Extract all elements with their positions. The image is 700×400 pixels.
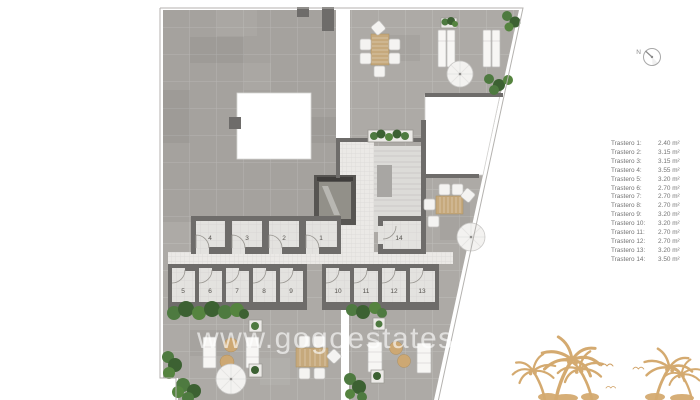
legend: Trastero 1:2.40 m² Trastero 2:3.15 m² Tr… — [611, 140, 699, 265]
room-label-1: 1 — [319, 235, 323, 242]
legend-value: 3.20 m² — [658, 247, 699, 256]
room-label-2: 2 — [282, 235, 286, 242]
legend-row: Trastero 4:3.55 m² — [611, 167, 699, 176]
room-label-9: 9 — [289, 288, 293, 295]
parasol-top — [447, 61, 473, 87]
legend-value: 2.70 m² — [658, 193, 699, 202]
legend-label: Trastero 10: — [611, 220, 658, 229]
legend-value: 3.15 m² — [658, 158, 699, 167]
legend-row: Trastero 11:2.70 m² — [611, 229, 699, 238]
legend-value: 3.20 m² — [658, 176, 699, 185]
rooftop-planter — [368, 130, 413, 143]
legend-row: Trastero 1:2.40 m² — [611, 140, 699, 149]
legend-value: 2.70 m² — [658, 238, 699, 247]
legend-value: 3.20 m² — [658, 220, 699, 229]
room-label-13: 13 — [418, 288, 426, 295]
legend-value: 3.15 m² — [658, 149, 699, 158]
legend-label: Trastero 3: — [611, 158, 658, 167]
legend-row: Trastero 6:2.70 m² — [611, 185, 699, 194]
legend-value: 2.70 m² — [658, 229, 699, 238]
legend-value: 3.20 m² — [658, 211, 699, 220]
legend-row: Trastero 7:2.70 m² — [611, 193, 699, 202]
legend-label: Trastero 11: — [611, 229, 658, 238]
legend-row: Trastero 10:3.20 m² — [611, 220, 699, 229]
legend-row: Trastero 5:3.20 m² — [611, 176, 699, 185]
legend-row: Trastero 3:3.15 m² — [611, 158, 699, 167]
legend-label: Trastero 2: — [611, 149, 658, 158]
legend-value: 2.70 m² — [658, 202, 699, 211]
north-label: N — [636, 49, 641, 56]
legend-value: 3.55 m² — [658, 167, 699, 176]
legend-row: Trastero 12:2.70 m² — [611, 238, 699, 247]
room-label-5: 5 — [181, 288, 185, 295]
room-label-10: 10 — [334, 288, 342, 295]
parasol-bottom-left — [216, 364, 246, 394]
room-label-12: 12 — [390, 288, 398, 295]
legend-label: Trastero 7: — [611, 193, 658, 202]
room-label-11: 11 — [363, 288, 370, 295]
legend-value: 2.70 m² — [658, 185, 699, 194]
legend-label: Trastero 12: — [611, 238, 658, 247]
legend-row: Trastero 2:3.15 m² — [611, 149, 699, 158]
legend-label: Trastero 6: — [611, 185, 658, 194]
birds-decoration — [601, 364, 644, 388]
legend-label: Trastero 4: — [611, 167, 658, 176]
storage-block-bottom-right — [322, 264, 439, 310]
legend-label: Trastero 13: — [611, 247, 658, 256]
legend-label: Trastero 9: — [611, 211, 658, 220]
north-compass-icon: N — [636, 49, 660, 66]
legend-value: 2.40 m² — [658, 140, 699, 149]
palm-trees-decoration — [513, 337, 700, 400]
planter-top — [441, 17, 458, 28]
legend-row: Trastero 13:3.20 m² — [611, 247, 699, 256]
legend-label: Trastero 14: — [611, 256, 658, 265]
legend-label: Trastero 5: — [611, 176, 658, 185]
legend-row: Trastero 8:2.70 m² — [611, 202, 699, 211]
legend-value: 3.50 m² — [658, 256, 699, 265]
room-label-4: 4 — [208, 235, 212, 242]
legend-label: Trastero 1: — [611, 140, 658, 149]
legend-row: Trastero 14:3.50 m² — [611, 256, 699, 265]
room-label-8: 8 — [262, 288, 266, 295]
legend-label: Trastero 8: — [611, 202, 658, 211]
room-label-3: 3 — [245, 235, 249, 242]
room-label-6: 6 — [208, 288, 212, 295]
room-label-14: 14 — [395, 235, 403, 242]
room-label-7: 7 — [235, 288, 239, 295]
floorplan-page: 4 3 2 1 14 5 6 7 8 9 10 11 12 13 N — [0, 0, 700, 400]
floor-plan-image: 4 3 2 1 14 5 6 7 8 9 10 11 12 13 N — [0, 0, 700, 400]
legend-row: Trastero 9:3.20 m² — [611, 211, 699, 220]
